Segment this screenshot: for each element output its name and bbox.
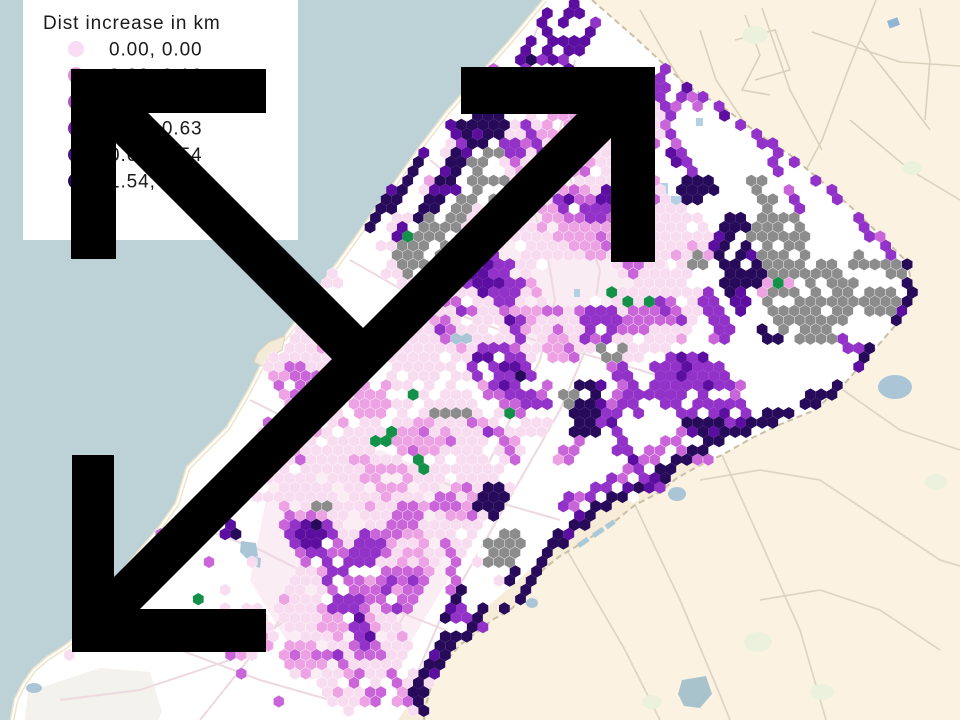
svg-text:Dist increase in km: Dist increase in km (43, 13, 221, 34)
svg-text:0.00, 0.00: 0.00, 0.00 (109, 40, 203, 61)
